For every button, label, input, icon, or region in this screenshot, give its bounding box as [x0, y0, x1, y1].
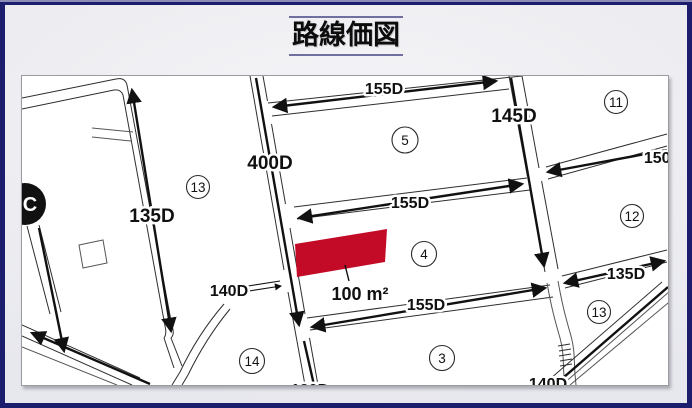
label-155d-mid: 155D — [391, 195, 429, 212]
zone-4: 4 — [412, 242, 437, 267]
label-155d-top: 155D — [365, 81, 403, 98]
zone-13-left: 13 — [187, 176, 210, 199]
route-value-labels: 155D 400D 150D 145D 150D 155D 135D 155D … — [129, 81, 668, 385]
svg-text:14: 14 — [244, 354, 260, 369]
c-mark-letter: C — [23, 194, 37, 216]
label-140d-btm: 140D — [529, 376, 567, 385]
svg-text:12: 12 — [624, 209, 639, 224]
route-value-arrows — [32, 78, 668, 385]
zone-11: 11 — [605, 91, 628, 114]
page-title: 路線価図 — [292, 20, 400, 51]
zone-14: 14 — [240, 349, 265, 374]
zone-13-right: 13 — [588, 301, 611, 324]
zone-numbers: 5 11 13 12 4 13 3 14 — [187, 91, 644, 374]
left-140d-arrow — [248, 281, 281, 291]
label-130d-btm: 130D — [291, 382, 329, 385]
steps-marks — [558, 344, 572, 366]
label-135d-right: 135D — [607, 266, 645, 283]
highlighted-parcel — [295, 229, 387, 277]
page-title-block: 路線価図 — [289, 16, 403, 56]
label-150d: 150D — [644, 150, 668, 167]
svg-text:5: 5 — [401, 133, 409, 148]
zone-3: 3 — [430, 346, 455, 371]
rosenka-map-svg: 155D 400D 150D 145D 150D 155D 135D 155D … — [22, 76, 668, 385]
svg-text:3: 3 — [438, 351, 446, 366]
svg-text:11: 11 — [609, 95, 623, 110]
window-border-highlight — [0, 0, 692, 2]
zone-5: 5 — [392, 127, 418, 153]
zone-12: 12 — [621, 205, 644, 228]
rosenka-map: 155D 400D 150D 145D 150D 155D 135D 155D … — [21, 75, 669, 386]
label-140d-left: 140D — [210, 283, 248, 300]
svg-text:13: 13 — [190, 180, 205, 195]
label-135d-left: 135D — [129, 206, 174, 227]
parcel-area-label: 100 m² — [331, 284, 388, 304]
label-155d-btm: 155D — [407, 297, 445, 314]
svg-text:4: 4 — [420, 247, 428, 262]
label-400d: 400D — [247, 153, 292, 174]
road-boundary-lines — [22, 76, 668, 385]
svg-text:13: 13 — [591, 305, 606, 320]
building-outline — [79, 240, 107, 268]
label-145d: 145D — [491, 106, 536, 127]
c-station-mark: C — [22, 183, 46, 225]
